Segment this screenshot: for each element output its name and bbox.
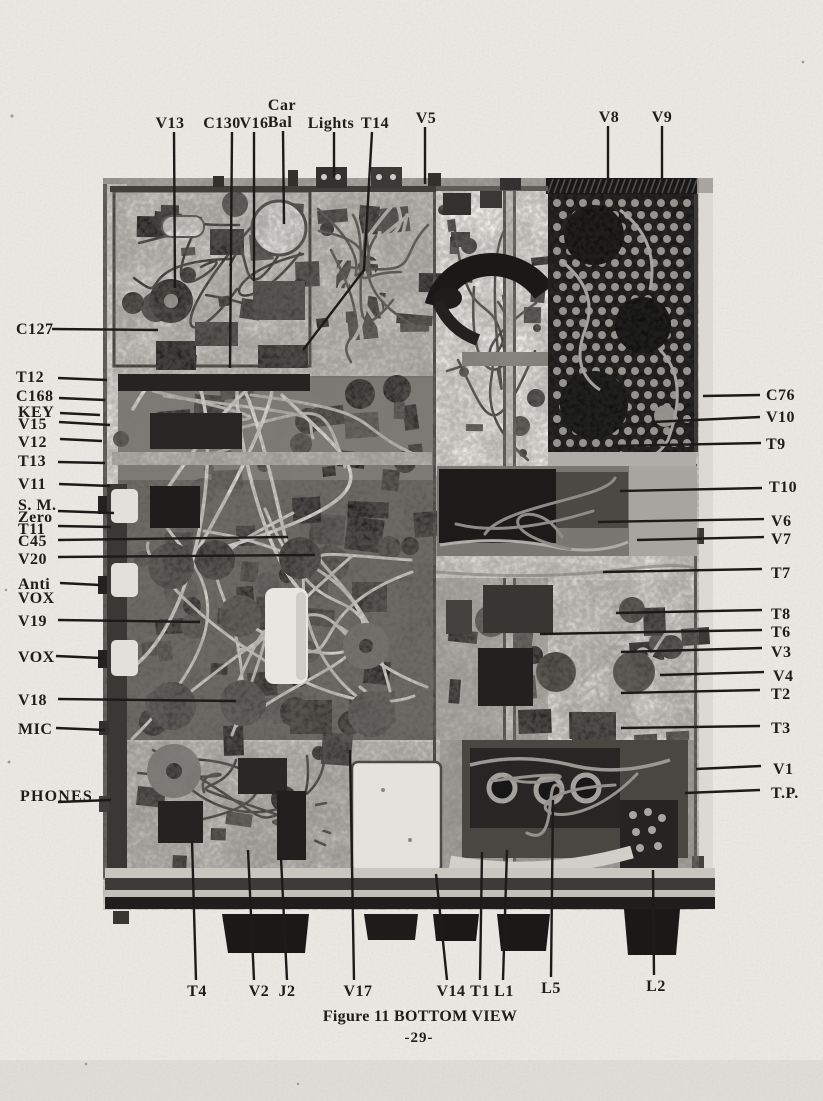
svg-text:Lights: Lights [308,115,355,132]
svg-text:V16: V16 [239,115,268,132]
svg-text:V6: V6 [771,513,792,530]
svg-text:VOX: VOX [18,649,55,666]
svg-text:V15: V15 [18,416,47,433]
svg-text:C127: C127 [16,321,54,338]
svg-text:T12: T12 [16,369,44,386]
svg-text:V5: V5 [416,110,437,127]
svg-text:Car: Car [268,97,296,114]
svg-text:V10: V10 [766,409,795,426]
svg-text:T7: T7 [771,565,791,582]
svg-text:L1: L1 [494,983,514,1000]
svg-text:T2: T2 [771,686,791,703]
svg-text:V9: V9 [652,109,673,126]
svg-text:V20: V20 [18,551,47,568]
svg-text:V3: V3 [771,644,792,661]
svg-text:V14: V14 [436,983,465,1000]
svg-text:V18: V18 [18,692,47,709]
svg-text:V17: V17 [343,983,372,1000]
svg-text:T6: T6 [771,624,791,641]
svg-text:T13: T13 [18,453,46,470]
svg-text:V2: V2 [249,983,270,1000]
svg-text:T4: T4 [187,983,207,1000]
svg-text:L2: L2 [646,978,666,995]
svg-text:V7: V7 [771,531,792,548]
svg-text:Bal: Bal [268,114,293,131]
svg-text:MIC: MIC [18,721,52,738]
svg-text:J2: J2 [279,983,296,1000]
svg-text:V13: V13 [155,115,184,132]
svg-text:Figure 11 BOTTOM VIEW: Figure 11 BOTTOM VIEW [323,1008,517,1025]
svg-text:T14: T14 [361,115,389,132]
svg-text:V12: V12 [18,434,47,451]
svg-text:V19: V19 [18,613,47,630]
svg-text:V1: V1 [773,761,794,778]
svg-text:L5: L5 [541,980,561,997]
svg-text:V11: V11 [18,476,46,493]
svg-text:C76: C76 [766,387,795,404]
svg-text:T1: T1 [470,983,490,1000]
svg-text:-29-: -29- [405,1030,434,1046]
svg-text:C168: C168 [16,388,54,405]
svg-text:VOX: VOX [18,590,55,607]
svg-text:C130: C130 [203,115,241,132]
svg-text:V4: V4 [773,668,794,685]
svg-text:PHONES: PHONES [20,788,93,805]
svg-text:T.P.: T.P. [771,785,799,802]
svg-text:T9: T9 [766,436,786,453]
svg-text:T8: T8 [771,606,791,623]
svg-text:T3: T3 [771,720,791,737]
svg-text:V8: V8 [599,109,620,126]
svg-text:T10: T10 [769,479,797,496]
svg-text:C45: C45 [18,533,47,550]
